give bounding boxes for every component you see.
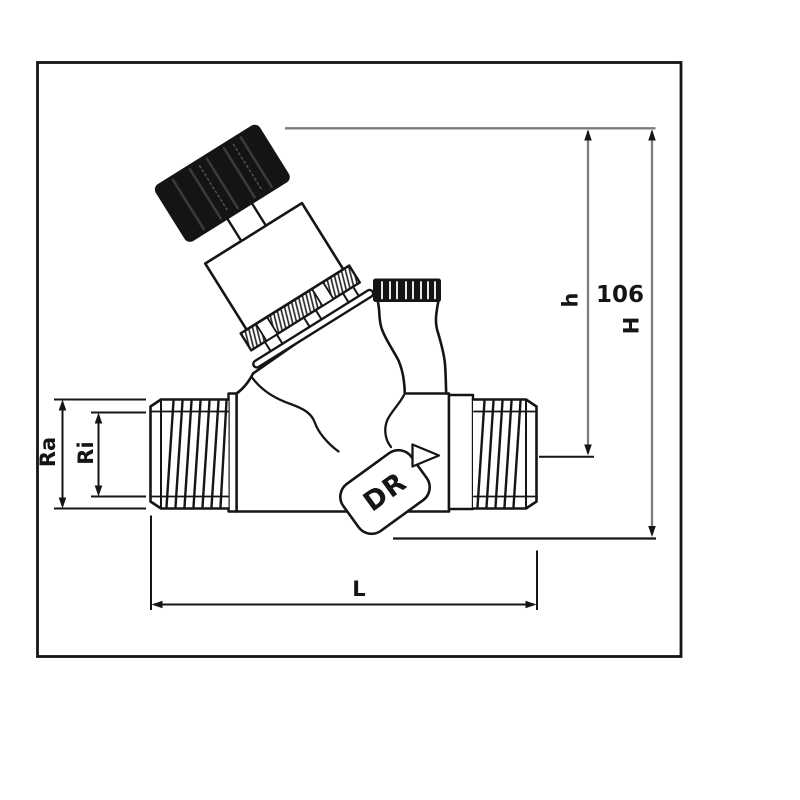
- spring-bonnet: [205, 203, 343, 330]
- gauge-plug: [374, 279, 441, 302]
- arrow-down-icon: [584, 445, 592, 456]
- dimension-h: h: [539, 130, 594, 457]
- arrow-down-icon: [95, 486, 103, 497]
- dimension-h-total-label: H: [620, 317, 644, 335]
- dimension-h-label: h: [559, 293, 583, 308]
- dimension-l-label: L: [352, 577, 365, 601]
- dimension-h-total-value: 106: [596, 282, 644, 308]
- right-hex-face: [449, 395, 473, 509]
- arrow-up-icon: [584, 130, 592, 141]
- gauge-boss-edge: [436, 301, 446, 394]
- valve-technical-drawing: DR Ra Ri L h: [0, 0, 800, 800]
- arrow-up-icon: [95, 413, 103, 424]
- arrow-down-icon: [648, 526, 656, 537]
- arrow-right-icon: [526, 601, 537, 609]
- valve-figure: DR: [145, 118, 536, 540]
- right-thread: [473, 400, 537, 509]
- arrow-left-icon: [152, 601, 163, 609]
- dimension-ri-label: Ri: [74, 441, 98, 464]
- dimension-l: L: [151, 516, 537, 611]
- dimension-ri: Ri: [74, 413, 146, 497]
- dimension-ra-label: Ra: [36, 437, 60, 467]
- arrow-down-icon: [59, 498, 67, 509]
- arrow-up-icon: [648, 130, 656, 141]
- left-thread: [151, 400, 229, 509]
- plug-cap: [374, 279, 441, 302]
- drawing-canvas: DR Ra Ri L h: [0, 0, 800, 800]
- arrow-up-icon: [59, 400, 67, 411]
- left-hex-face: [229, 394, 237, 512]
